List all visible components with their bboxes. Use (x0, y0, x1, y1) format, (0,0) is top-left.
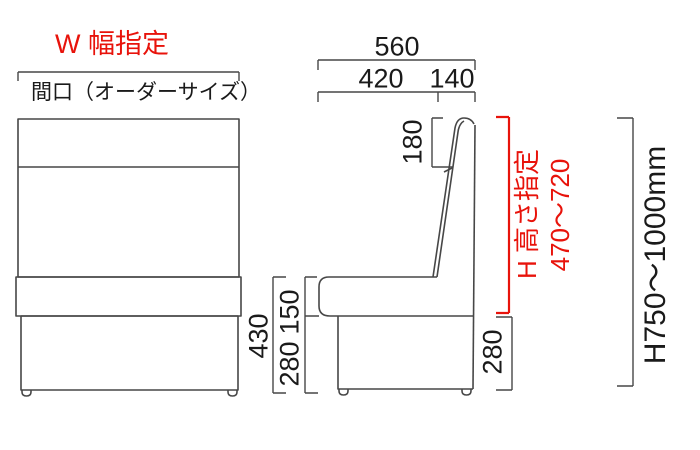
side-left-foot (339, 389, 348, 395)
side-seat-cushion (319, 277, 473, 316)
front-right-foot (228, 390, 237, 396)
height-spec-red-line (496, 117, 509, 313)
opening-order-size-label: 間口（オーダーサイズ） (31, 82, 261, 103)
dimension-drawing-svg (0, 0, 700, 450)
height-spec-bracket (496, 117, 509, 313)
side-backrest-inner-edge (437, 121, 464, 277)
dim-560-label: 560 (374, 34, 419, 61)
height-spec-range-label: 470〜720 (547, 159, 573, 272)
furniture-dimension-diagram: W 幅指定 間口（オーダーサイズ） 560 420 140 180 430 15… (0, 0, 700, 450)
height-150-280-dimension-line (305, 277, 319, 393)
front-backrest-panel (18, 119, 239, 277)
dim-150-label: 150 (277, 289, 304, 334)
front-base-box (21, 316, 238, 390)
side-backrest-back-edge (473, 125, 475, 389)
overall-height-dimension-line (617, 118, 633, 386)
side-base-box (338, 316, 473, 389)
overall-height-range-label: H750〜1000mm (641, 146, 671, 364)
front-left-foot (22, 390, 31, 396)
dim-140-label: 140 (429, 66, 474, 93)
front-seat-cushion (16, 277, 241, 316)
side-right-foot (462, 389, 471, 395)
w-width-dimension-line (18, 72, 239, 81)
dim-430-label: 430 (246, 313, 273, 358)
side-backrest-front-edge (433, 118, 474, 277)
dim-280-left-label: 280 (277, 341, 304, 386)
height-spec-label: H 高さ指定 (514, 149, 540, 279)
dim-180-label: 180 (400, 119, 427, 164)
dim-420-label: 420 (358, 66, 403, 93)
width-spec-label: W 幅指定 (55, 31, 169, 58)
depth-420-140-dimension-line (318, 92, 475, 102)
front-view-drawing (16, 119, 241, 396)
dim-280-right-label: 280 (480, 329, 507, 374)
